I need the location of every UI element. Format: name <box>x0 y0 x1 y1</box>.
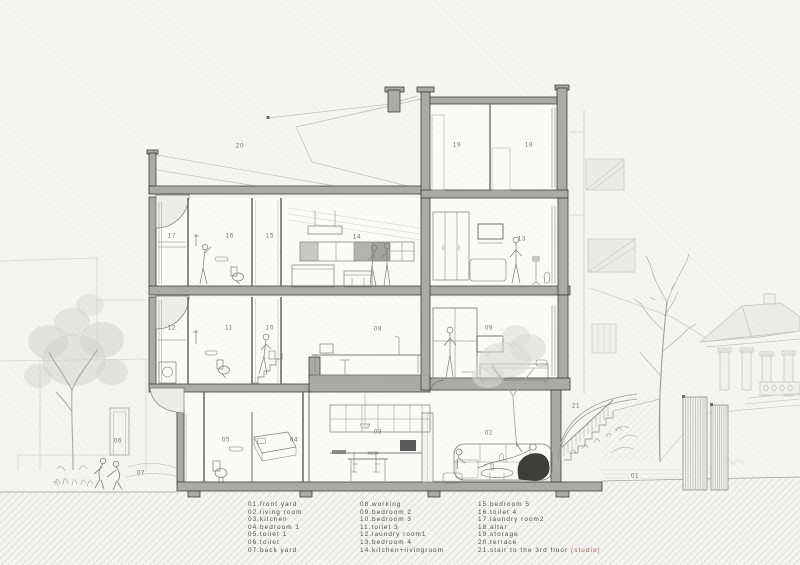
front-yard-paving <box>602 470 690 478</box>
legend-item: 02.living room <box>248 509 360 517</box>
legend-item: 03.kitchen <box>248 516 360 524</box>
room-label-03: 03 <box>374 429 382 436</box>
backyard-path <box>126 463 178 477</box>
room-label-02: 02 <box>485 430 493 437</box>
legend-item: 11.toilet 3 <box>360 524 478 532</box>
legend-item: 13.bedroom 4 <box>360 539 478 547</box>
room-label-16: 16 <box>226 233 234 240</box>
room-label-21: 21 <box>572 403 580 410</box>
outhouse-toilet <box>110 408 129 455</box>
legend-item: 01.front yard <box>248 501 360 509</box>
room-label-18: 18 <box>525 142 533 149</box>
architectural-section-sheet: 01 02 03 04 05 06 07 08 09 10 11 12 13 1… <box>0 0 800 565</box>
legend-item: 14.kitchen+livingroom <box>360 547 478 555</box>
room-label-04: 04 <box>290 437 298 444</box>
legend-item: 05.toilet 1 <box>248 531 360 539</box>
legend-item: 07.back yard <box>248 547 360 555</box>
room-label-05: 05 <box>222 437 230 444</box>
room-label-20: 20 <box>236 143 244 150</box>
room-label-17: 17 <box>168 233 176 240</box>
room-label-13: 13 <box>518 236 526 243</box>
legend-item: 06.toilet <box>248 539 360 547</box>
legend-item: 04.bedroom 1 <box>248 524 360 532</box>
legend-item: 08.working <box>360 501 478 509</box>
room-label-07: 07 <box>137 470 145 477</box>
room-label-06: 06 <box>114 438 122 445</box>
room-label-10: 10 <box>266 325 274 332</box>
background-right-house <box>660 294 800 468</box>
legend-column-2: 08.working 09.bedroom 2 10.bedroom 3 11.… <box>360 501 478 554</box>
section-drawing <box>0 0 800 565</box>
legend-item: 20.terrace <box>478 539 601 547</box>
legend-item-stair-studio: 21.stair to the 3rd floor (studio) <box>478 547 601 555</box>
legend: 01.front yard 02.living room 03.kitchen … <box>248 501 601 554</box>
room-label-08: 08 <box>374 326 382 333</box>
room-label-19: 19 <box>453 142 461 149</box>
legend-item: 10.bedroom 3 <box>360 516 478 524</box>
legend-item: 17.laundry room2 <box>478 516 601 524</box>
legend-item: 12.laundry room1 <box>360 531 478 539</box>
legend-item: 09.bedroom 2 <box>360 509 478 517</box>
front-gate <box>682 395 728 490</box>
room-label-14: 14 <box>353 234 361 241</box>
room-label-11: 11 <box>225 325 233 332</box>
legend-item: 16.toilet 4 <box>478 509 601 517</box>
room-label-09: 09 <box>485 325 493 332</box>
room-label-15: 15 <box>266 233 274 240</box>
terrace-perspective-lines <box>157 155 335 186</box>
legend-item: 18.altar <box>478 524 601 532</box>
legend-column-3: 15.bedroom 5 16.toilet 4 17.laundry room… <box>478 501 601 554</box>
room-label-12: 12 <box>168 325 176 332</box>
legend-item-text: 21.stair to the 3rd floor <box>478 547 571 554</box>
room-label-01: 01 <box>631 473 639 480</box>
legend-item: 15.bedroom 5 <box>478 501 601 509</box>
legend-item: 19.storage <box>478 531 601 539</box>
backyard-figures <box>94 458 122 490</box>
legend-item-accent: (studio) <box>571 547 601 554</box>
background-right-buildings <box>570 110 706 394</box>
legend-column-1: 01.front yard 02.living room 03.kitchen … <box>248 501 360 554</box>
